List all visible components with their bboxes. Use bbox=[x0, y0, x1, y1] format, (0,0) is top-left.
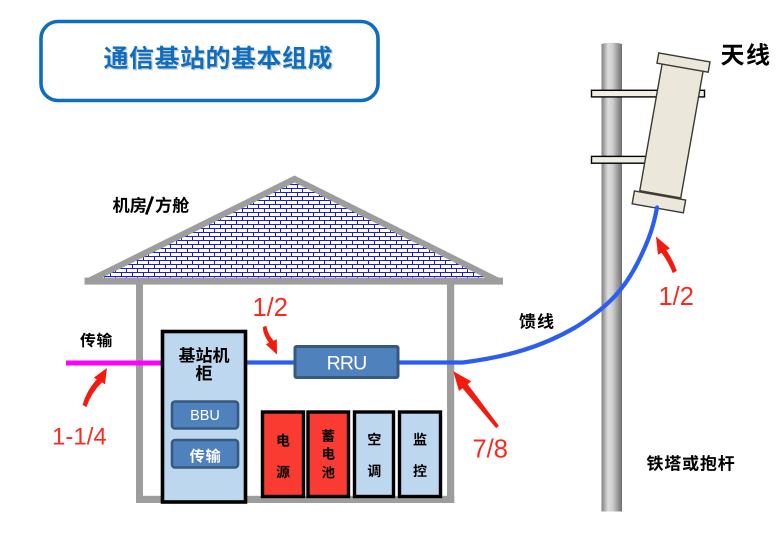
svg-text:1/2: 1/2 bbox=[253, 294, 288, 322]
svg-text:7/8: 7/8 bbox=[473, 436, 508, 464]
svg-text:BBU: BBU bbox=[190, 408, 220, 424]
svg-text:RRU: RRU bbox=[327, 353, 367, 375]
svg-text:1/2: 1/2 bbox=[659, 283, 694, 311]
svg-text:1-1/4: 1-1/4 bbox=[52, 424, 107, 451]
